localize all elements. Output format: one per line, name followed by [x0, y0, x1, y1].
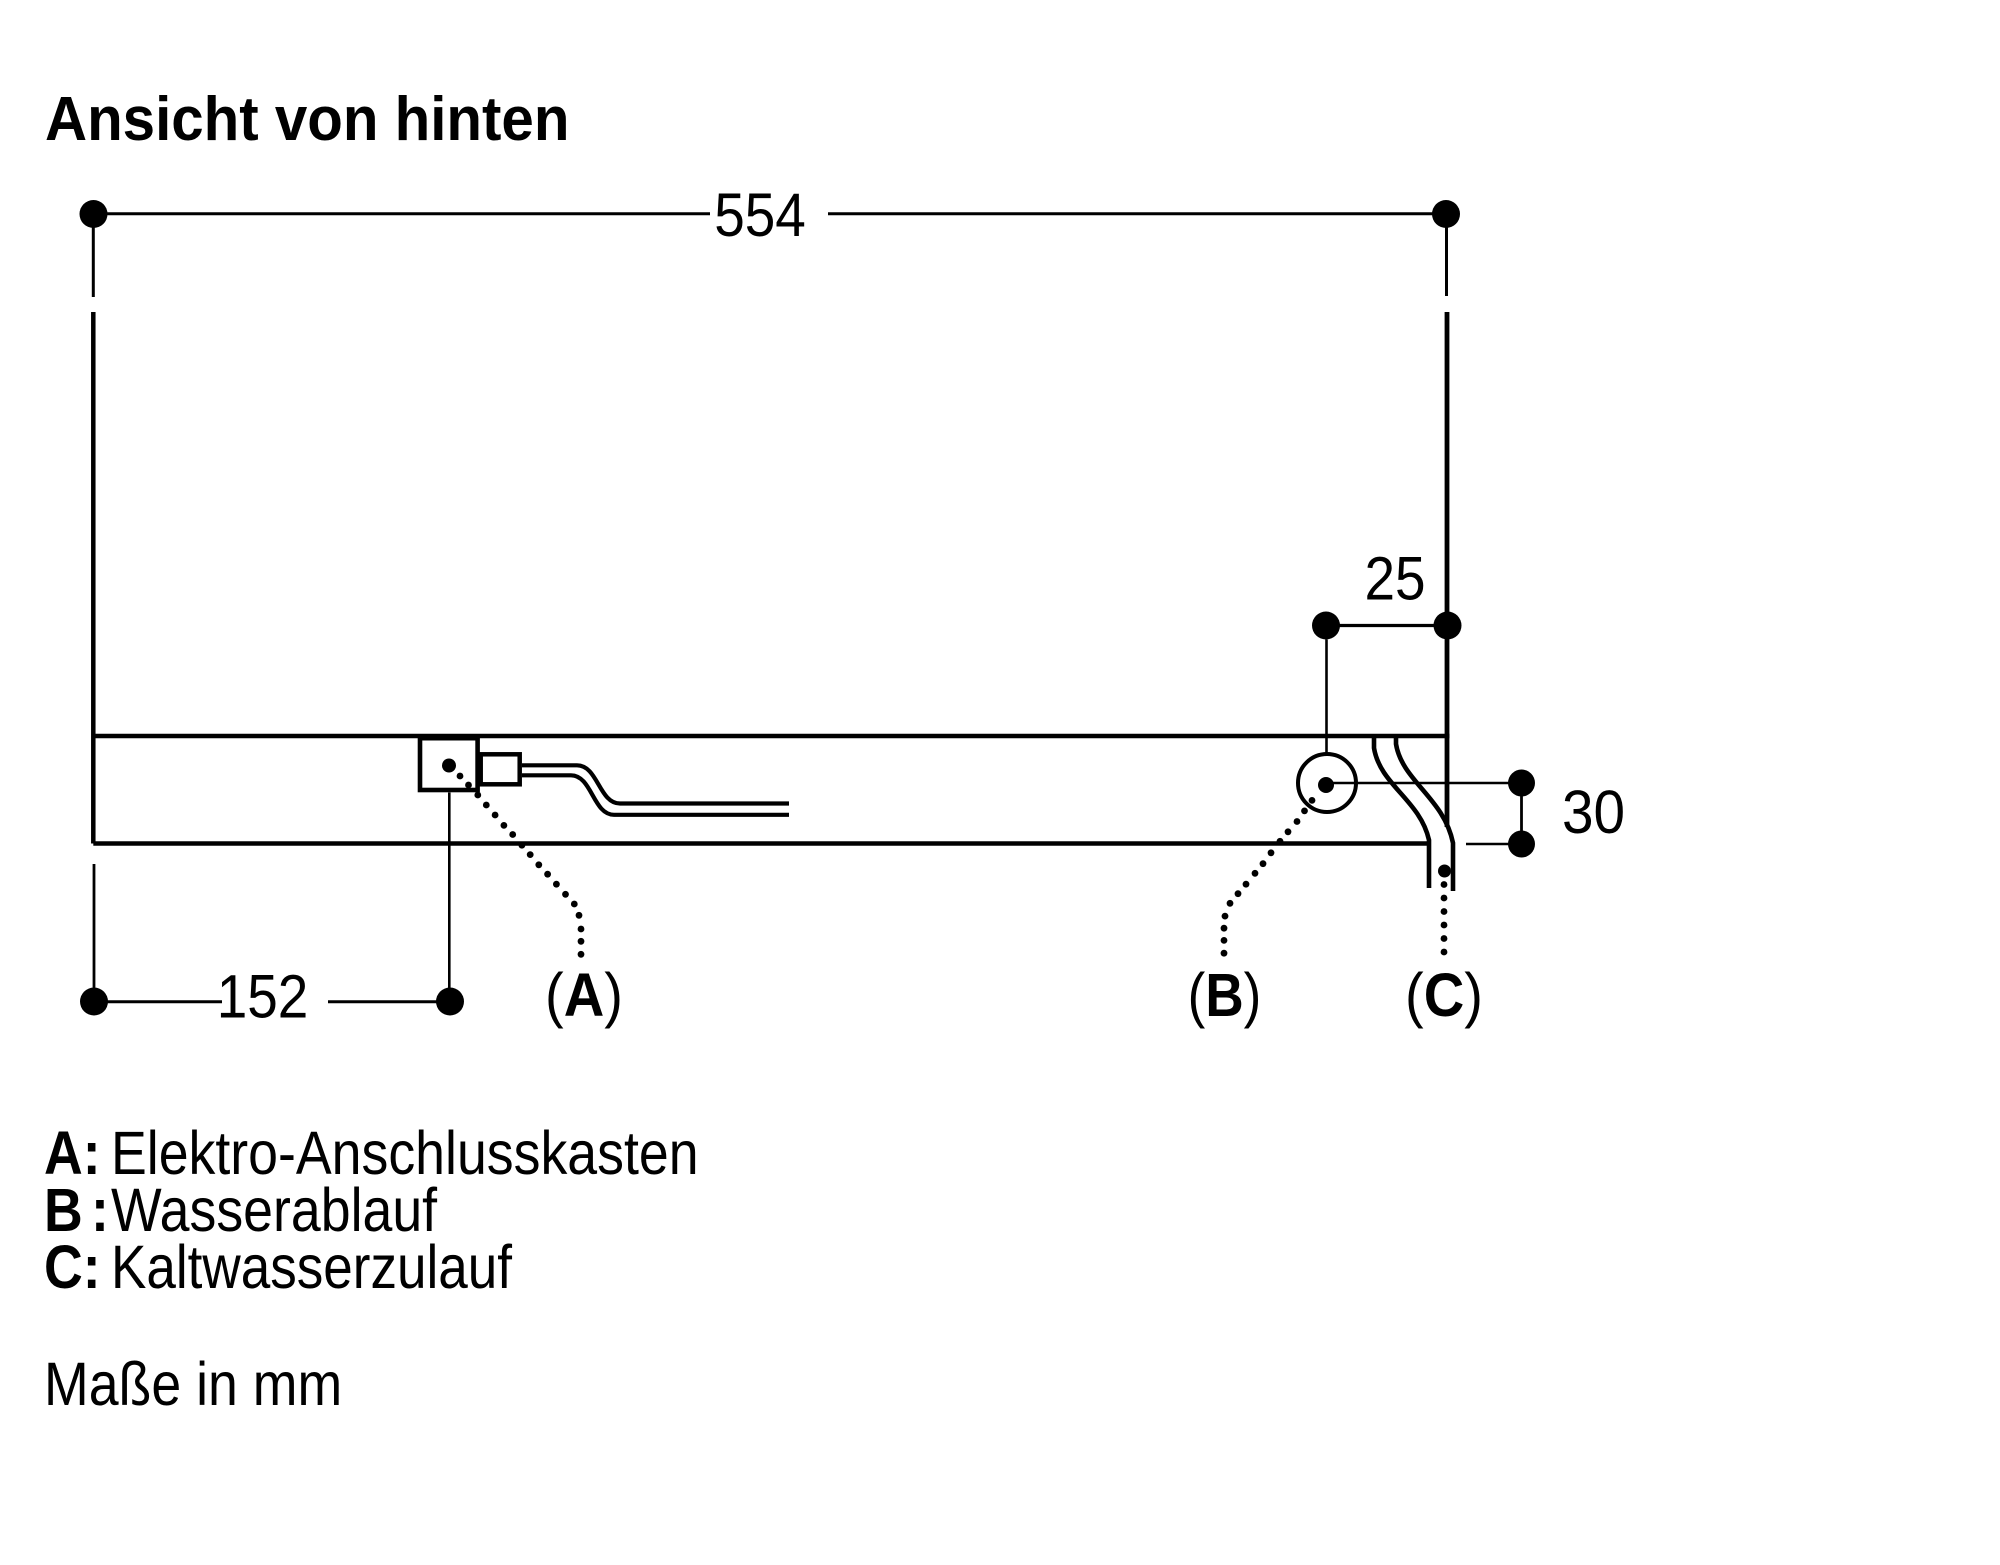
svg-text:554: 554	[714, 181, 806, 249]
svg-text:C:: C:	[44, 1234, 101, 1302]
svg-text:(C): (C)	[1405, 962, 1483, 1030]
svg-text:Ansicht von hinten: Ansicht von hinten	[45, 84, 569, 153]
svg-text:25: 25	[1364, 545, 1425, 613]
svg-text:(B): (B)	[1188, 962, 1262, 1030]
svg-text:Kaltwasserzulauf: Kaltwasserzulauf	[111, 1234, 512, 1302]
svg-text:(A): (A)	[545, 962, 623, 1030]
svg-text:Maße in mm: Maße in mm	[44, 1351, 342, 1419]
svg-text:152: 152	[217, 963, 309, 1031]
svg-text:30: 30	[1562, 779, 1625, 846]
